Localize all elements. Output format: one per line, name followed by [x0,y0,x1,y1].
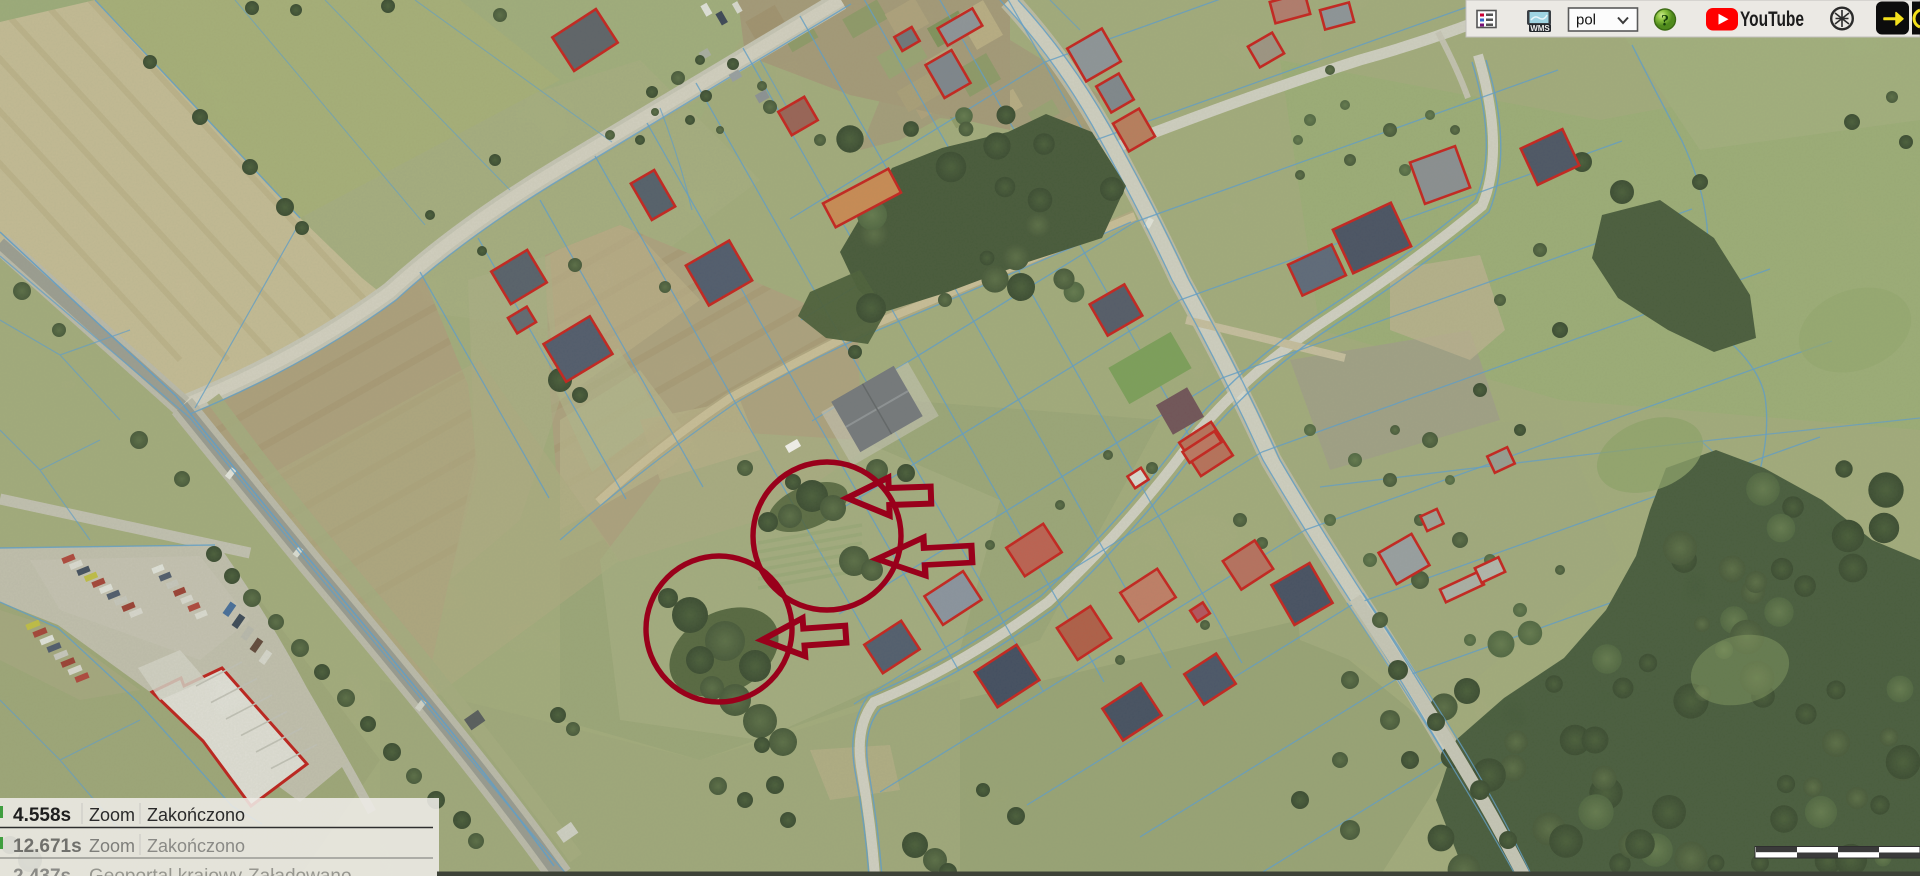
svg-text:pol: pol [1576,12,1596,29]
svg-text:YouTube: YouTube [1740,7,1804,31]
svg-text:WMS: WMS [1530,24,1550,33]
svg-text:Geoportal krajowy: Geoportal krajowy [89,866,243,876]
svg-text:?: ? [1661,13,1669,30]
svg-text:Zoom: Zoom [89,836,135,856]
svg-text:Zakończono: Zakończono [147,805,245,825]
svg-text:Załadowano: Załadowano [248,866,352,876]
svg-text:Zakończono: Zakończono [147,836,245,856]
svg-text:4.558s: 4.558s [13,805,71,826]
svg-text:Zoom: Zoom [89,805,135,825]
svg-text:12.671s: 12.671s [13,836,82,857]
svg-text:2.437s: 2.437s [13,866,71,876]
